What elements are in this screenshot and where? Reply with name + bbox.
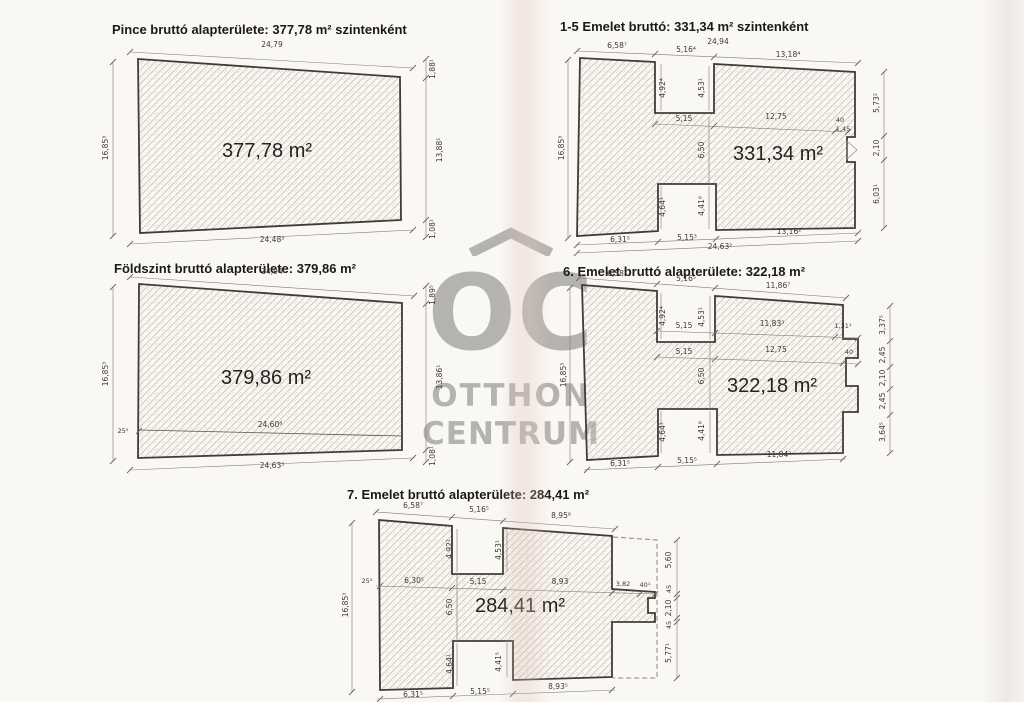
dim-top: 24,79 bbox=[261, 40, 283, 49]
dim-top-notch: 5,16⁵ bbox=[469, 505, 489, 514]
dim-left: 16,85³ bbox=[559, 363, 568, 387]
dim-bottom: 24,48³ bbox=[260, 235, 284, 244]
dim-mid-right: 12,75 bbox=[765, 112, 787, 121]
dim-bottom-left: 6,31⁵ bbox=[610, 235, 630, 244]
dim-right-3: 2,10 bbox=[878, 369, 887, 386]
dim-left-step: 25⁵ bbox=[118, 427, 129, 435]
dim-top-left: 6,58⁷ bbox=[607, 269, 627, 278]
area-label: 379,86 m² bbox=[221, 367, 311, 389]
dim-top-left: 6,58⁷ bbox=[403, 501, 423, 510]
dim-row2-mid: 12,75 bbox=[765, 345, 787, 354]
dim-right-2: 45 bbox=[665, 585, 673, 593]
dim-bottom-right: 11,84² bbox=[767, 450, 791, 459]
floor-outline bbox=[582, 285, 858, 460]
dim-top-right: 8,95⁶ bbox=[551, 511, 571, 520]
dim-row-right: 8,93 bbox=[552, 577, 569, 586]
dim-left: 16,85³ bbox=[341, 593, 350, 617]
dim-right-mid: 2,10 bbox=[872, 139, 881, 156]
dim-right-top: 5,73² bbox=[872, 93, 881, 113]
dim-top-overall: 24,94 bbox=[707, 37, 729, 46]
dim-center-height: 6,50 bbox=[697, 141, 706, 158]
plan-foldszint: Földszint bruttó alapterülete: 379,86 m²… bbox=[101, 261, 444, 473]
dim-left: 16,85³ bbox=[101, 362, 110, 386]
dim-bottom-left: 6,31⁵ bbox=[610, 459, 630, 468]
dim-right-4: 2,45 bbox=[878, 392, 887, 409]
dim-top-notch: 5,16⁵ bbox=[676, 274, 696, 283]
dim-row-left: 6,30⁵ bbox=[404, 576, 424, 585]
dim-top-left: 6,58⁷ bbox=[607, 41, 627, 50]
dim-bottom-notch: 5,15⁵ bbox=[470, 687, 490, 696]
dim-right-bottom: 1,08¹ bbox=[428, 446, 437, 466]
dim-right: 13,86¹ bbox=[435, 365, 444, 389]
area-label: 284,41 m² bbox=[475, 595, 565, 617]
dim-notch-depth-right: 4,53¹ bbox=[494, 540, 503, 560]
dim-notch-depth-left: 4,92² bbox=[445, 539, 454, 559]
scanned-floorplan-page: OC OTTHON CENTRUM Pince bruttó alapterül… bbox=[0, 0, 1024, 702]
area-label: 322,18 m² bbox=[727, 375, 817, 397]
dim-mid-step: 40 bbox=[836, 116, 844, 124]
dim-top: 24,94 bbox=[261, 267, 283, 276]
dim-top-right: 11,86⁷ bbox=[766, 281, 790, 290]
plan-pince: Pince bruttó alapterülete: 377,78 m² szi… bbox=[101, 22, 444, 247]
dim-right-bottom: 6,03¹ bbox=[872, 184, 881, 204]
dim-top-notch: 5,16⁴ bbox=[676, 45, 696, 54]
dim-lower-notch-left: 4,64¹ bbox=[445, 654, 454, 674]
plan-title: Pince bruttó alapterülete: 377,78 m² szi… bbox=[112, 22, 407, 37]
dim-bottom-notch: 5,15⁵ bbox=[677, 456, 697, 465]
plan-emelet-1-5: 1-5 Emelet bruttó: 331,34 m² szintenként… bbox=[557, 19, 887, 256]
plan-emelet-6: 6. Emelet bruttó alapterülete: 322,18 m²… bbox=[559, 264, 893, 473]
dim-notch-depth-left: 4,92⁴ bbox=[658, 306, 667, 326]
dim-right-top: 1,88¹ bbox=[428, 59, 437, 79]
dim-center-height: 6,50 bbox=[445, 598, 454, 615]
dim-right: 13,88¹ bbox=[435, 138, 444, 162]
area-label: 377,78 m² bbox=[222, 140, 312, 162]
dim-bottom-right: 13,16² bbox=[777, 227, 801, 236]
dim-row2-left: 5,15 bbox=[676, 347, 693, 356]
dim-left: 16,85³ bbox=[101, 136, 110, 160]
dim-row-step2: 40¹ bbox=[640, 581, 651, 589]
dim-top-right: 13,18⁴ bbox=[776, 50, 800, 59]
dim-lower-notch-right: 4,41⁶ bbox=[697, 421, 706, 441]
dim-notch-depth-right: 4,53¹ bbox=[697, 78, 706, 98]
plan-title: 1-5 Emelet bruttó: 331,34 m² szintenként bbox=[560, 19, 809, 34]
dim-bottom-right: 8,93⁵ bbox=[548, 682, 568, 691]
dim-lower-notch-right: 4,41⁶ bbox=[697, 196, 706, 216]
dim-right-5: 3,64⁵ bbox=[878, 422, 887, 442]
dim-row-step: 3,82 bbox=[616, 580, 630, 588]
dim-right-2: 2,45 bbox=[878, 346, 887, 363]
dim-bottom-notch: 5,15³ bbox=[677, 233, 697, 242]
dim-right-1: 3,37⁵ bbox=[878, 315, 887, 335]
dim-right-top: 1,89⁵ bbox=[428, 285, 437, 305]
dim-bottom-left: 6,31⁵ bbox=[403, 690, 423, 699]
plan-title: Földszint bruttó alapterülete: 379,86 m² bbox=[114, 261, 357, 276]
dim-right-5: 5,77¹ bbox=[664, 643, 673, 663]
dim-right-3: 2,10 bbox=[664, 599, 673, 616]
dim-mid-left: 5,15 bbox=[676, 114, 693, 123]
dim-notch-depth-right: 4,53¹ bbox=[697, 307, 706, 327]
dim-lower-notch-left: 4,64¹ bbox=[658, 197, 667, 217]
dim-left-step: 25⁵ bbox=[362, 577, 373, 585]
plan-title: 7. Emelet bruttó alapterülete: 284,41 m² bbox=[347, 487, 590, 502]
dim-inner-bottom: 24,60⁸ bbox=[258, 420, 282, 429]
dim-notch-depth-left: 4,92⁴ bbox=[658, 78, 667, 98]
floorplan-sheet: Pince bruttó alapterülete: 377,78 m² szi… bbox=[0, 0, 1024, 702]
door-niche-arrow bbox=[847, 141, 857, 159]
dim-row1-mid: 11,83³ bbox=[760, 319, 784, 328]
dim-right-4: 45 bbox=[665, 621, 673, 629]
dim-bottom: 24,63³ bbox=[260, 461, 284, 470]
dim-row1-right: 1,31¹ bbox=[834, 322, 851, 330]
dim-right-1: 5,60 bbox=[664, 551, 673, 568]
dim-center-height: 6,50 bbox=[697, 367, 706, 384]
dim-lower-notch-left: 4,64¹ bbox=[658, 422, 667, 442]
dim-row2-step: 40 bbox=[845, 348, 853, 356]
dim-lower-notch-right: 4,41⁵ bbox=[494, 652, 503, 672]
dim-row-notch: 5,15 bbox=[470, 577, 487, 586]
dim-row1-left: 5,15 bbox=[676, 321, 693, 330]
plan-emelet-7: 7. Emelet bruttó alapterülete: 284,41 m²… bbox=[341, 487, 680, 702]
area-label: 331,34 m² bbox=[733, 143, 823, 165]
dim-left: 16,85³ bbox=[557, 136, 566, 160]
dim-mid-step2: 1,45 bbox=[836, 125, 850, 133]
dim-bottom-overall: 24,63² bbox=[708, 242, 732, 251]
dim-right-bottom: 1,08¹ bbox=[428, 219, 437, 239]
